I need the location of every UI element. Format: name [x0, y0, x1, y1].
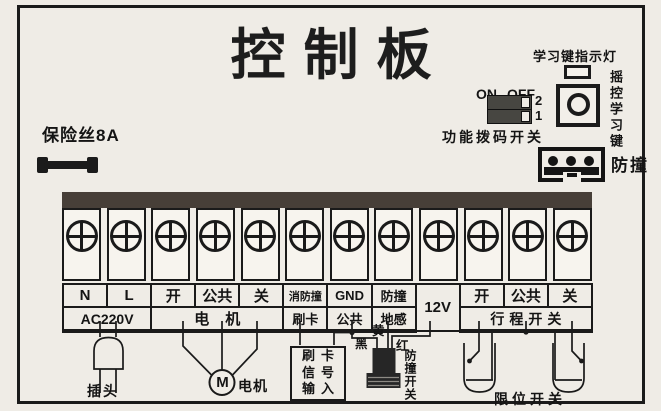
- terminal-label-open: 开: [151, 284, 195, 307]
- terminal: [241, 208, 280, 281]
- terminal-label-12v: 12V: [416, 284, 460, 331]
- terminal-label-n: N: [63, 284, 107, 307]
- fuse-icon: [87, 157, 98, 173]
- terminal: [285, 208, 324, 281]
- learn-key-indicator-label: 学习键指示灯: [533, 46, 617, 65]
- terminal-label-l: L: [107, 284, 151, 307]
- terminal-screw-icon: [110, 220, 142, 252]
- connector-pin: [584, 156, 594, 166]
- terminal: [107, 208, 146, 281]
- terminal-label-gnd: GND: [327, 284, 371, 307]
- dip-switch-icon: [487, 95, 532, 124]
- terminal-screw-icon: [512, 220, 544, 252]
- terminal-screw-icon: [467, 220, 499, 252]
- terminal-label-open2: 开: [460, 284, 504, 307]
- motor-m-letter: M: [210, 374, 235, 391]
- terminal: [62, 208, 101, 281]
- limit-switch-label: 限位开关: [494, 389, 566, 409]
- terminal-screw-icon: [289, 220, 321, 252]
- group-label-travel-switch: 行程开关: [460, 307, 592, 331]
- dip-slot-1: [521, 111, 530, 122]
- terminal-screw-icon: [333, 220, 365, 252]
- terminal-strip-screws: [62, 208, 592, 281]
- group-label-card: 刷卡: [283, 307, 327, 331]
- card-box-line: 信号: [292, 365, 344, 382]
- terminal-screw-icon: [556, 220, 588, 252]
- terminal: [374, 208, 413, 281]
- terminal-screw-icon: [423, 220, 455, 252]
- control-board-diagram: 控制板 保险丝8A 学习键指示灯 摇控学习键 ON OFF 2 1 功能拨码开关…: [0, 0, 661, 411]
- bump-connector-label: 防撞: [611, 151, 649, 176]
- remote-learn-key-label: 摇控学习键: [606, 70, 625, 154]
- motor-label: 电机: [238, 376, 268, 396]
- dip-caption: 功能拨码开关: [442, 127, 544, 147]
- black-wire-label: 黑: [355, 333, 368, 352]
- dip-position-1-label: 1: [535, 108, 542, 123]
- plug-label: 插头: [87, 381, 119, 401]
- terminal-screw-icon: [378, 220, 410, 252]
- terminal: [196, 208, 235, 281]
- connector-notch: [563, 172, 581, 182]
- terminal: [553, 208, 592, 281]
- bump-switch-label: 防撞开关: [402, 349, 419, 405]
- terminal-label-close2: 关: [548, 284, 592, 307]
- terminal-label-common: 公共: [195, 284, 239, 307]
- learn-button-ring: [567, 93, 590, 116]
- learn-button-icon: [556, 84, 600, 127]
- terminal: [508, 208, 547, 281]
- terminal-label-table: N L 开 公共 关 消防撞 GND 防撞 12V 开 公共 关 AC220V …: [62, 283, 593, 333]
- dip-slot-2: [521, 97, 530, 108]
- fuse-label: 保险丝8A: [42, 121, 120, 146]
- terminal-label-common2: 公共: [504, 284, 548, 307]
- terminal-label-fire-bump: 消防撞: [283, 284, 327, 307]
- connector-pin: [548, 156, 558, 166]
- group-label-ac220v: AC220V: [63, 307, 151, 331]
- card-box-line: 输入: [292, 381, 344, 398]
- terminal-label-bump: 防撞: [372, 284, 416, 307]
- yellow-wire-label: 黄: [372, 320, 385, 339]
- terminal: [330, 208, 369, 281]
- terminal-screw-icon: [199, 220, 231, 252]
- terminal: [464, 208, 503, 281]
- connector-pin: [566, 156, 576, 166]
- group-label-common: 公共: [327, 307, 371, 331]
- connector-tab: [567, 173, 577, 177]
- led-indicator-icon: [564, 65, 591, 79]
- terminal: [151, 208, 190, 281]
- terminal-screw-icon: [66, 220, 98, 252]
- dip-divider: [488, 109, 531, 110]
- card-signal-input-box: 刷卡 信号 输入: [290, 346, 346, 401]
- terminal-strip-bar: [62, 192, 592, 208]
- card-box-line: 刷卡: [292, 348, 344, 365]
- bump-connector-icon: [538, 147, 605, 182]
- dip-position-2-label: 2: [535, 93, 542, 108]
- terminal: [419, 208, 458, 281]
- terminal-screw-icon: [244, 220, 276, 252]
- terminal-label-close: 关: [239, 284, 283, 307]
- group-label-motor: 电机: [151, 307, 283, 331]
- terminal-screw-icon: [155, 220, 187, 252]
